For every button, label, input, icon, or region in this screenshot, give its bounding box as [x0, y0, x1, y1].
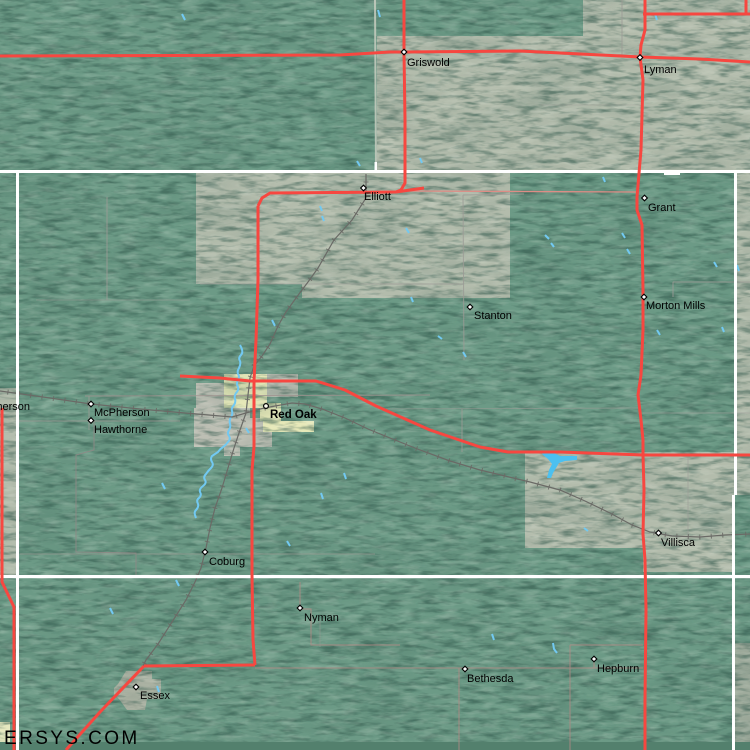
svg-text:Villisca: Villisca	[661, 537, 696, 549]
svg-text:Coburg: Coburg	[209, 556, 245, 568]
svg-text:Red Oak: Red Oak	[270, 409, 317, 421]
svg-text:Hawthorne: Hawthorne	[94, 424, 147, 436]
svg-text:Grant: Grant	[648, 202, 676, 214]
svg-text:Morton Mills: Morton Mills	[646, 300, 706, 312]
svg-text:Elliott: Elliott	[364, 191, 391, 203]
svg-text:Lyman: Lyman	[644, 64, 677, 76]
svg-text:Stanton: Stanton	[474, 310, 512, 322]
svg-text:Nyman: Nyman	[304, 612, 339, 624]
svg-text:Hepburn: Hepburn	[597, 663, 639, 675]
svg-text:ERSYS.COM: ERSYS.COM	[4, 728, 140, 749]
svg-text:Essex: Essex	[140, 690, 170, 702]
svg-text:Bethesda: Bethesda	[467, 673, 514, 685]
svg-text:Emerson: Emerson	[0, 401, 30, 413]
svg-text:Griswold: Griswold	[407, 57, 450, 69]
svg-text:McPherson: McPherson	[94, 407, 150, 419]
